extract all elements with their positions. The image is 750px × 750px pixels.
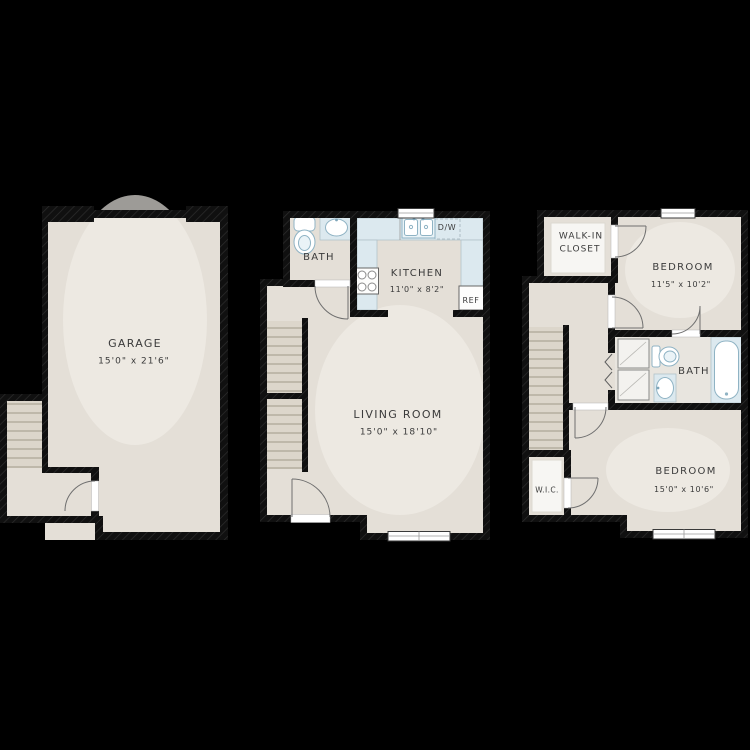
- kitchen-sink-icon: [402, 217, 435, 238]
- kitchen-dims: 11'0" x 8'2": [390, 285, 444, 295]
- bath1-toilet-icon: [294, 217, 315, 254]
- bath1-label: BATH: [303, 252, 335, 265]
- upper-stairs: [529, 327, 563, 450]
- walk-in-closet-label-line2: CLOSET: [560, 244, 601, 255]
- fridge-label: REF: [462, 296, 479, 306]
- bedroom1-label: BEDROOM: [652, 262, 713, 275]
- bath2-sink-icon: [654, 374, 676, 402]
- bedroom2-label: BEDROOM: [655, 466, 716, 479]
- bedroom2-window: [653, 530, 715, 540]
- garage-stairs: [7, 400, 42, 468]
- stove-icon: [356, 268, 379, 294]
- linen-shelves-icon: [618, 339, 649, 400]
- bedroom1-dims: 11'5" x 10'2": [651, 280, 711, 290]
- living-room-label: LIVING ROOM: [353, 408, 442, 422]
- bath2-toilet-icon: [652, 346, 679, 367]
- floor-plan-drawing: [0, 0, 750, 750]
- bedroom2-dims: 15'0" x 10'6": [654, 485, 714, 495]
- kitchen-window: [398, 209, 434, 219]
- floor-plan-canvas: GARAGE 15'0" x 21'6" BATH KITCHEN 11'0" …: [0, 0, 750, 750]
- dishwasher-label: D/W: [438, 223, 457, 233]
- bath1-sink-icon: [320, 216, 352, 240]
- living-room-window: [388, 532, 450, 542]
- main-floor-plan: [260, 209, 490, 542]
- garage-dims: 15'0" x 21'6": [98, 356, 170, 367]
- living-room-dims: 15'0" x 18'10": [360, 427, 438, 438]
- bathtub-icon: [711, 337, 742, 403]
- garage-label: GARAGE: [108, 337, 162, 351]
- walk-in-closet-label-line1: WALK-IN: [559, 231, 603, 242]
- kitchen-label: KITCHEN: [391, 268, 443, 281]
- bedroom1-window: [661, 209, 695, 219]
- bath2-label: BATH: [678, 366, 710, 379]
- wic-label: W.I.C.: [535, 485, 559, 494]
